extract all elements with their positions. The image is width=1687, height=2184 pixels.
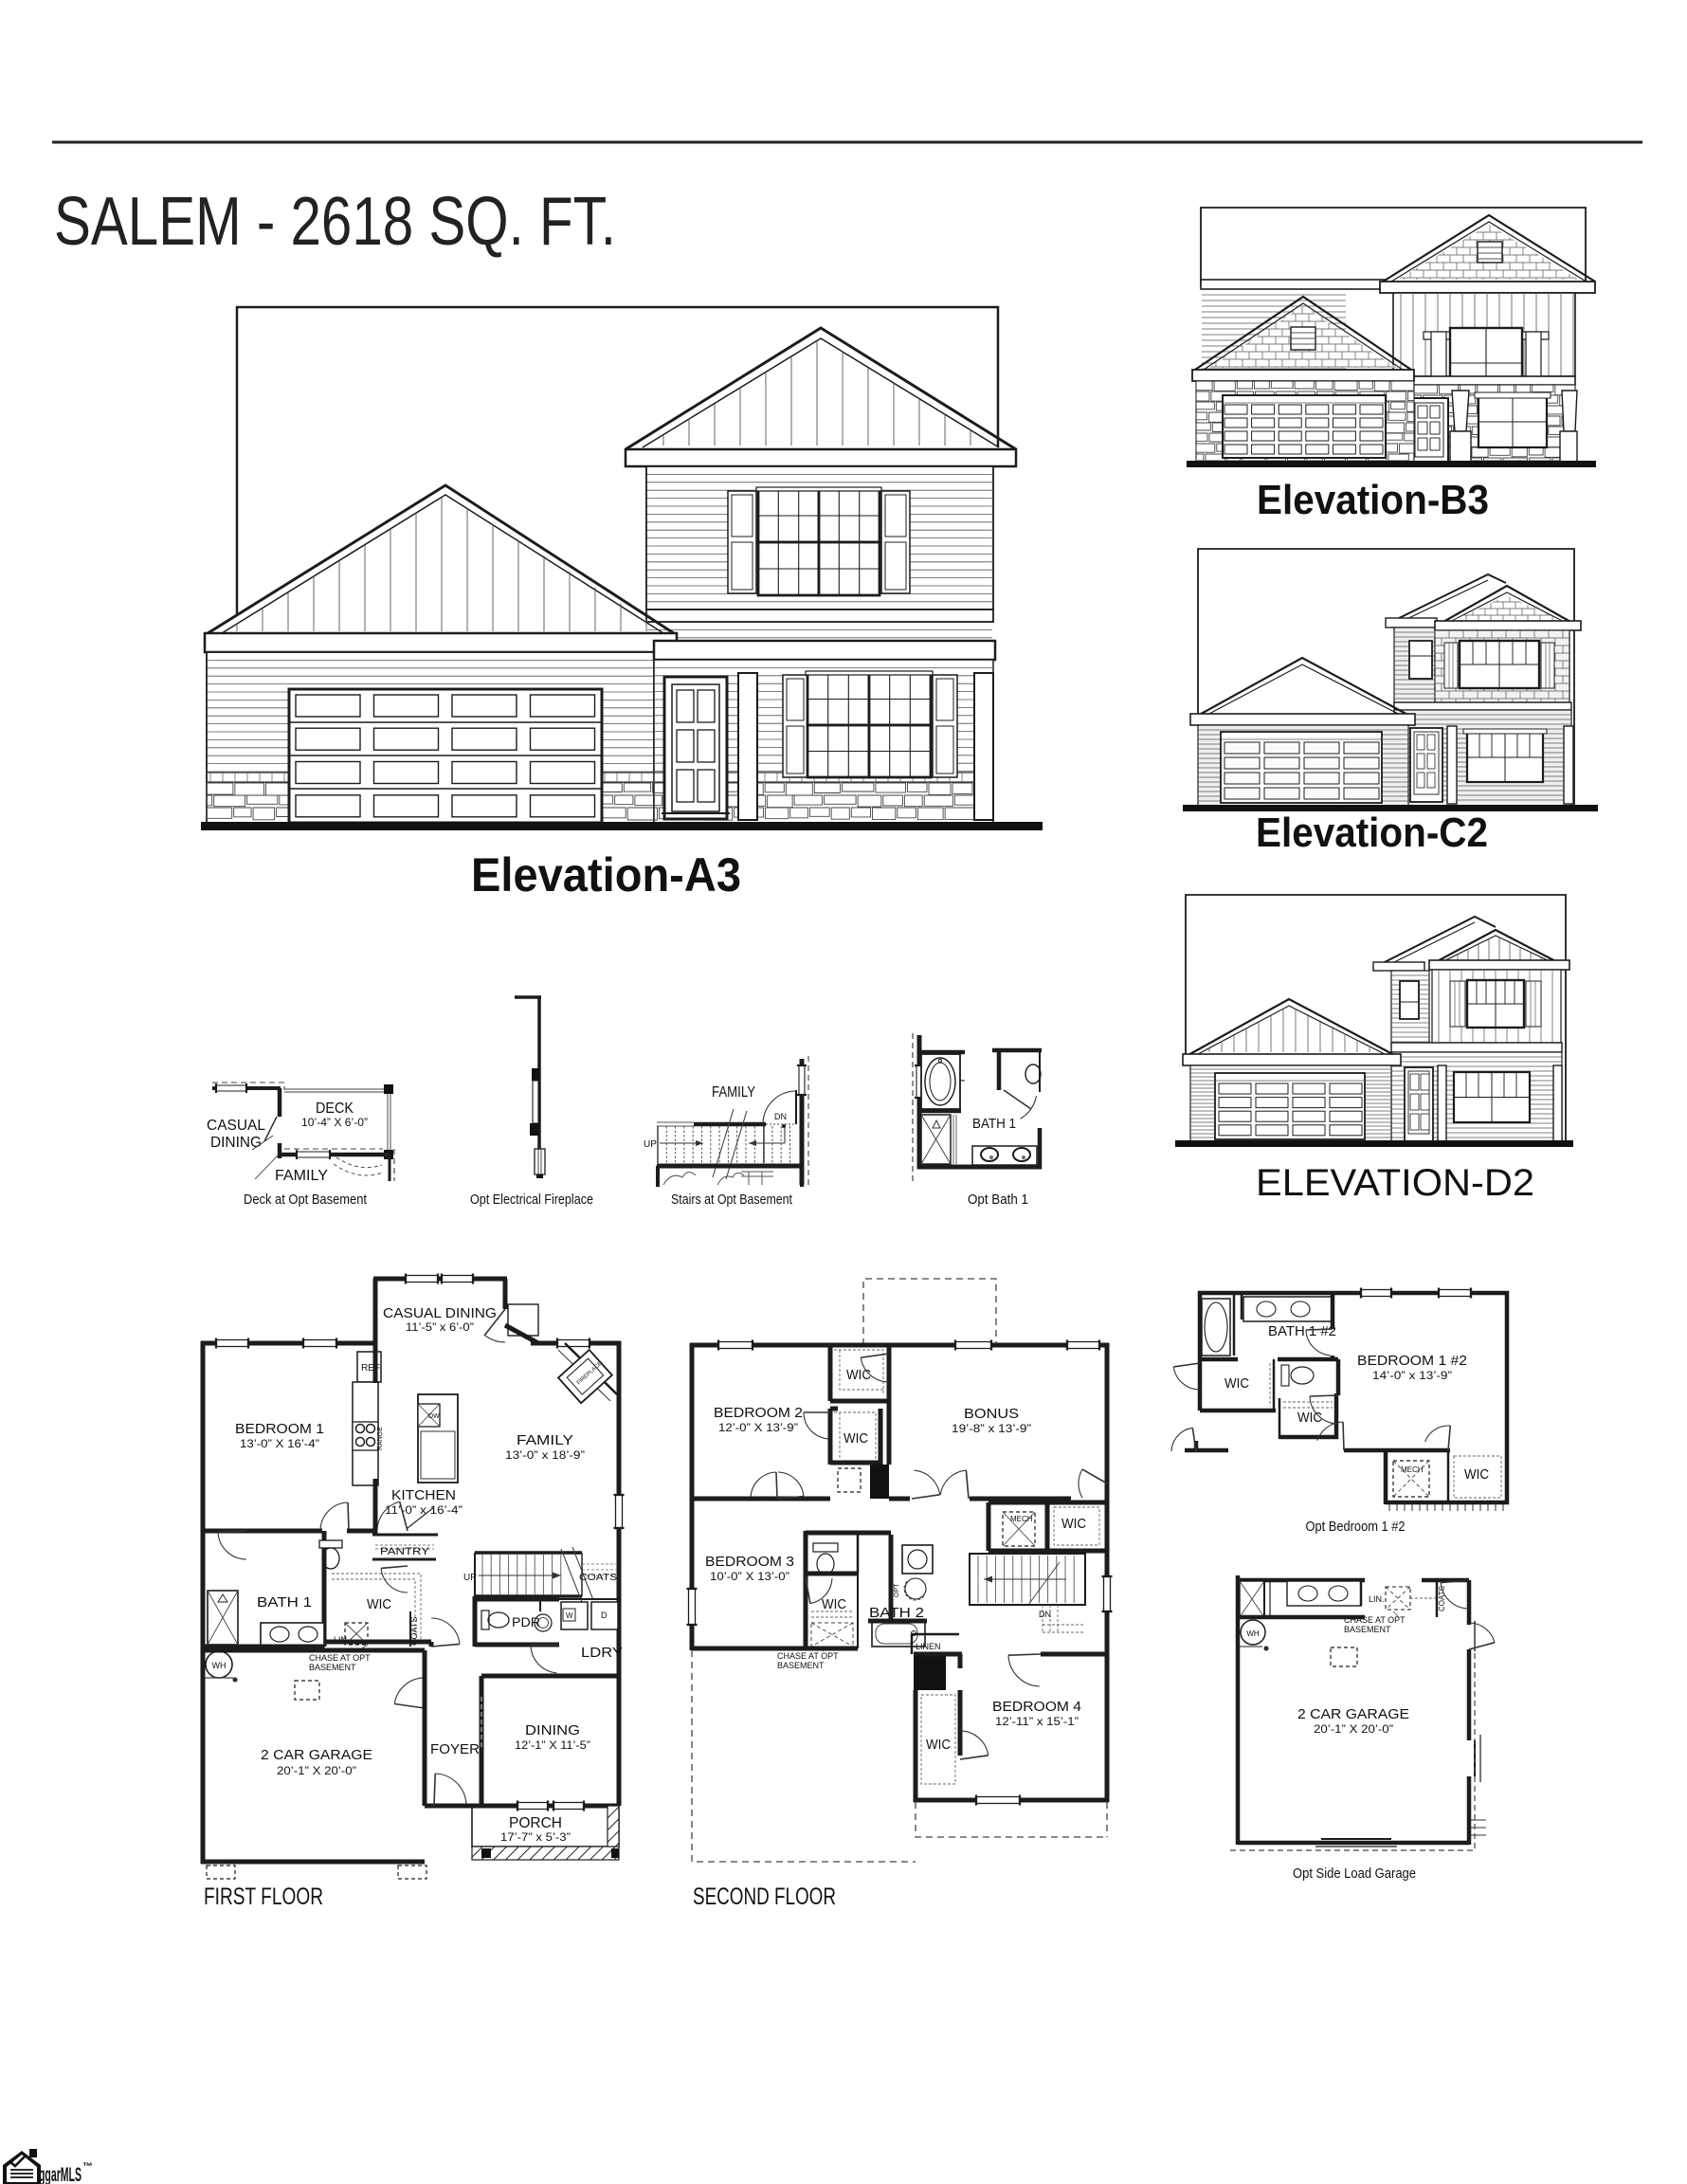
svg-text:KITCHEN: KITCHEN [391, 1487, 456, 1503]
svg-text:™: ™ [82, 2161, 93, 2173]
svg-text:Opt Side Load Garage: Opt Side Load Garage [1293, 1865, 1416, 1882]
svg-text:2 CAR GARAGE: 2 CAR GARAGE [1297, 1706, 1409, 1722]
svg-text:11’-5” x 6’-0”: 11’-5” x 6’-0” [406, 1322, 474, 1334]
svg-text:W: W [566, 1611, 573, 1620]
svg-text:RANGE: RANGE [377, 1427, 384, 1450]
svg-text:WIC: WIC [1061, 1517, 1086, 1532]
svg-text:FAMILY: FAMILY [275, 1168, 328, 1184]
svg-text:WH: WH [212, 1661, 227, 1670]
svg-text:BATH 1: BATH 1 [972, 1116, 1016, 1132]
svg-text:UP: UP [644, 1139, 657, 1150]
svg-text:BATH 1: BATH 1 [257, 1594, 312, 1611]
svg-text:WIC: WIC [1464, 1467, 1489, 1483]
svg-text:12’-11” x 15’-1”: 12’-11” x 15’-1” [995, 1717, 1079, 1728]
svg-text:BASEMENT: BASEMENT [309, 1663, 356, 1672]
svg-text:PDR: PDR [512, 1614, 540, 1629]
svg-text:Opt Electrical Fireplace: Opt Electrical Fireplace [470, 1192, 593, 1208]
svg-text:Opt Bath 1: Opt Bath 1 [968, 1192, 1028, 1208]
svg-text:13’-0” X 16’-4”: 13’-0” X 16’-4” [240, 1439, 319, 1450]
svg-text:WIC: WIC [846, 1368, 871, 1383]
svg-text:10’-4” X 6’-0”: 10’-4” X 6’-0” [301, 1116, 368, 1129]
svg-text:DINING: DINING [525, 1722, 580, 1738]
svg-text:WH: WH [1246, 1629, 1260, 1638]
svg-text:20’-1” X 20’-0”: 20’-1” X 20’-0” [277, 1766, 356, 1777]
svg-text:WIC: WIC [843, 1431, 868, 1447]
svg-text:19’-8” x 13’-9”: 19’-8” x 13’-9” [952, 1424, 1031, 1435]
svg-text:10’-0” X 13’-0”: 10’-0” X 13’-0” [710, 1572, 789, 1583]
svg-text:CASUAL DINING: CASUAL DINING [383, 1305, 497, 1321]
svg-text:BEDROOM 1 #2: BEDROOM 1 #2 [1357, 1353, 1467, 1369]
svg-text:Stairs at Opt Basement: Stairs at Opt Basement [671, 1192, 792, 1208]
svg-text:Elevation-B3: Elevation-B3 [1257, 477, 1489, 523]
svg-text:2 CAR GARAGE: 2 CAR GARAGE [261, 1747, 372, 1763]
svg-text:LDRY: LDRY [581, 1645, 623, 1661]
svg-text:BASEMENT: BASEMENT [777, 1661, 825, 1670]
svg-text:CHASE AT OPT: CHASE AT OPT [309, 1653, 371, 1663]
svg-text:BONUS: BONUS [964, 1406, 1019, 1422]
svg-text:FOYER: FOYER [430, 1741, 480, 1757]
svg-text:MECH: MECH [1010, 1515, 1033, 1523]
svg-text:DN: DN [774, 1112, 787, 1121]
svg-text:Opt Bedroom 1 #2: Opt Bedroom 1 #2 [1306, 1519, 1406, 1535]
svg-text:BATH 2: BATH 2 [869, 1605, 924, 1621]
svg-text:Elevation-C2: Elevation-C2 [1256, 810, 1488, 856]
svg-text:17’-7” x 5’-3”: 17’-7” x 5’-3” [500, 1830, 571, 1844]
svg-text:20’-1” X 20’-0”: 20’-1” X 20’-0” [1314, 1724, 1393, 1736]
svg-text:BEDROOM 4: BEDROOM 4 [992, 1699, 1081, 1715]
svg-text:WIC: WIC [822, 1597, 846, 1612]
svg-text:OPT: OPT [894, 1583, 900, 1597]
svg-text:WIC: WIC [926, 1738, 951, 1753]
svg-text:BASEMENT: BASEMENT [1344, 1625, 1391, 1634]
svg-text:CHASE AT OPT: CHASE AT OPT [777, 1651, 839, 1661]
svg-text:14’-0” x 13’-9”: 14’-0” x 13’-9” [1372, 1371, 1452, 1382]
svg-text:MECH: MECH [1401, 1465, 1424, 1474]
svg-text:DW: DW [428, 1413, 440, 1420]
svg-text:FIRST FLOOR: FIRST FLOOR [204, 1884, 323, 1910]
svg-text:DECK: DECK [316, 1101, 354, 1117]
svg-text:FAMILY: FAMILY [712, 1084, 755, 1101]
svg-text:13’-0” x 18’-9”: 13’-0” x 18’-9” [505, 1450, 585, 1462]
svg-text:WIC: WIC [1224, 1376, 1249, 1392]
svg-text:12’-1” X 11’-5”: 12’-1” X 11’-5” [515, 1740, 590, 1752]
svg-text:PANTRY: PANTRY [380, 1546, 430, 1557]
svg-text:D: D [601, 1611, 608, 1620]
svg-text:12’-0” X 13’-9”: 12’-0” X 13’-9” [718, 1423, 798, 1434]
svg-text:WIC: WIC [367, 1597, 391, 1612]
svg-text:COATS: COATS [579, 1573, 617, 1583]
svg-text:BEDROOM 1: BEDROOM 1 [235, 1421, 324, 1437]
svg-text:WIC: WIC [1297, 1410, 1322, 1426]
svg-text:SECOND FLOOR: SECOND FLOOR [693, 1884, 836, 1910]
svg-text:LINEN: LINEN [916, 1642, 941, 1651]
svg-text:SALEM - 2618 SQ. FT.: SALEM - 2618 SQ. FT. [54, 184, 616, 260]
svg-text:ELEVATION-D2: ELEVATION-D2 [1256, 1162, 1534, 1204]
svg-text:BATH 1 #2: BATH 1 #2 [1268, 1324, 1336, 1339]
svg-text:PORCH: PORCH [509, 1815, 562, 1831]
svg-text:LIN.: LIN. [1369, 1594, 1385, 1604]
svg-text:CASUAL: CASUAL [207, 1118, 265, 1134]
svg-text:BEDROOM 3: BEDROOM 3 [705, 1554, 794, 1570]
svg-text:UP: UP [463, 1573, 477, 1583]
svg-text:FAMILY: FAMILY [517, 1432, 573, 1448]
svg-text:BEDROOM 2: BEDROOM 2 [714, 1405, 803, 1421]
svg-text:Elevation-A3: Elevation-A3 [471, 848, 741, 901]
svg-text:ggarMLS: ggarMLS [39, 2164, 82, 2184]
svg-text:DN: DN [1039, 1610, 1051, 1619]
svg-text:Deck at Opt Basement: Deck at Opt Basement [244, 1192, 367, 1208]
